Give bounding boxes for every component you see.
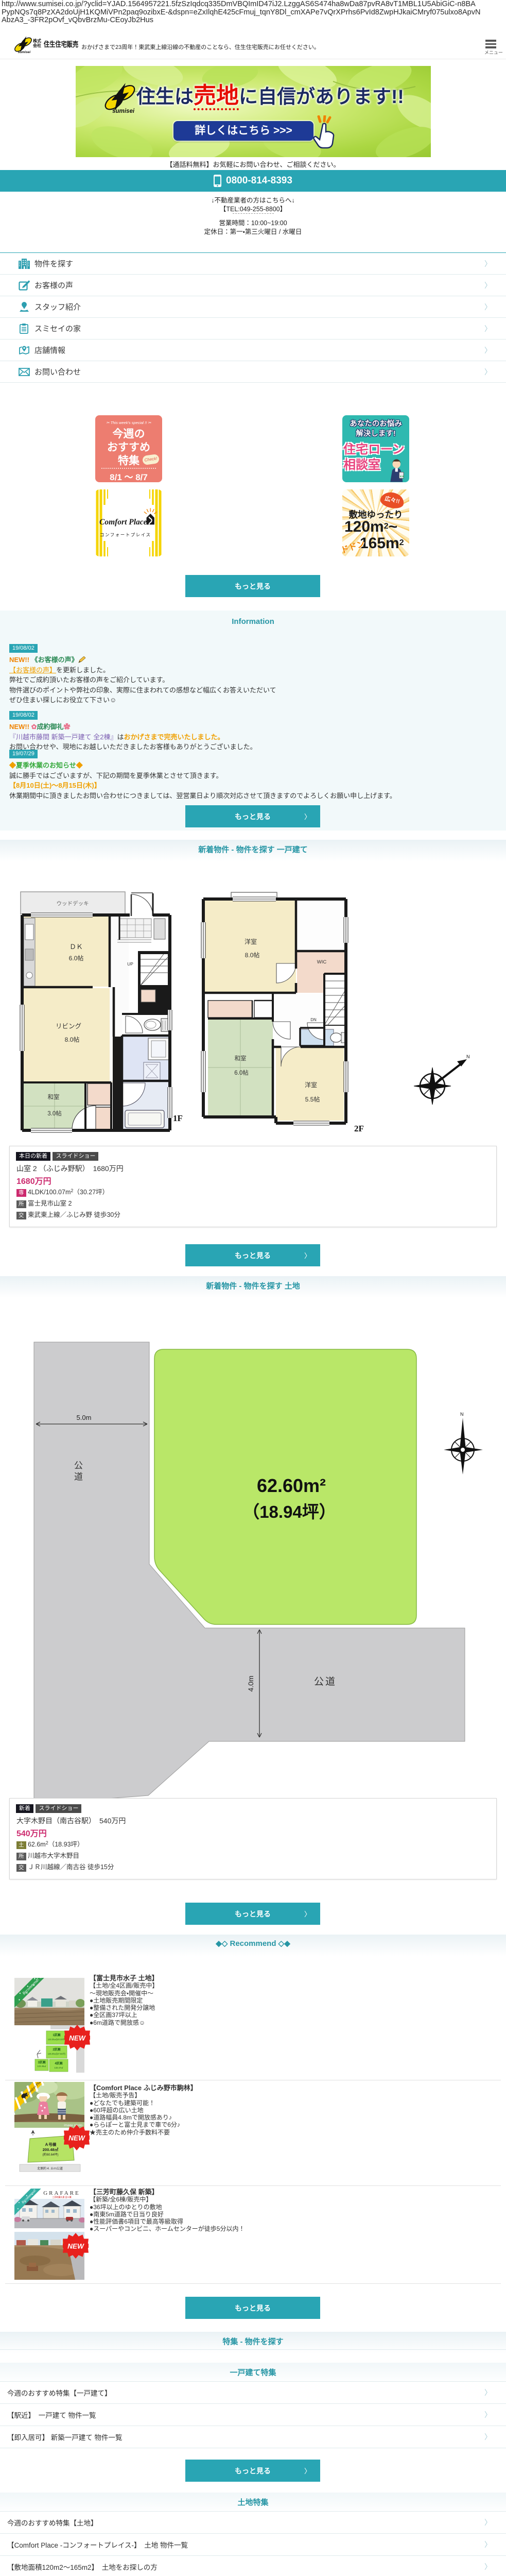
svg-text:N: N	[466, 1054, 470, 1059]
svg-text:(約60.64坪): (約60.64坪)	[42, 2153, 58, 2157]
svg-text:公: 公	[74, 1461, 83, 1470]
svg-text:和室: 和室	[48, 1094, 60, 1100]
svg-text:2区画: 2区画	[53, 2047, 60, 2052]
svg-text:4区画: 4区画	[55, 2061, 62, 2065]
svg-text:洋室: 洋室	[305, 1081, 317, 1089]
svg-text:2F: 2F	[354, 1124, 364, 1133]
svg-text:133.47㎡: 133.47㎡	[55, 2066, 64, 2069]
svg-text:リビング: リビング	[56, 1023, 81, 1030]
svg-text:洋室: 洋室	[245, 938, 257, 945]
svg-text:NEW: NEW	[67, 2243, 84, 2250]
svg-text:UP: UP	[127, 961, 133, 967]
svg-text:（18.94坪）: （18.94坪）	[242, 1502, 336, 1521]
svg-text:200.48㎡: 200.48㎡	[43, 2147, 59, 2152]
svg-text:公道: 公道	[314, 1676, 337, 1687]
svg-text:125.09㎡(37.84坪): 125.09㎡(37.84坪)	[48, 2052, 66, 2056]
svg-text:北側約４.８ｍ公道: 北側約４.８ｍ公道	[37, 2166, 63, 2171]
svg-text:三芳町藤久保 全６棟: 三芳町藤久保 全６棟	[52, 2195, 71, 2198]
svg-text:道: 道	[74, 1472, 83, 1482]
svg-text:8.0帖: 8.0帖	[65, 1036, 80, 1043]
svg-text:6.0帖: 6.0帖	[69, 954, 84, 962]
svg-text:3.0帖: 3.0帖	[47, 1110, 62, 1117]
svg-text:和室: 和室	[235, 1055, 247, 1062]
svg-text:4.0m: 4.0m	[247, 1675, 255, 1691]
svg-text:ＤＫ: ＤＫ	[69, 943, 83, 951]
svg-text:5.0m: 5.0m	[77, 1414, 92, 1421]
svg-text:Ａ号棟: Ａ号棟	[45, 2142, 57, 2147]
svg-text:6.0帖: 6.0帖	[234, 1069, 249, 1076]
svg-text:133.35㎡(40.33坪): 133.35㎡(40.33坪)	[48, 2038, 66, 2041]
svg-text:3区画: 3区画	[38, 2060, 45, 2064]
svg-text:8.0帖: 8.0帖	[245, 951, 260, 959]
svg-text:5.5帖: 5.5帖	[305, 1095, 320, 1103]
svg-text:N: N	[460, 1412, 464, 1417]
svg-text:ウッドデッキ: ウッドデッキ	[57, 900, 89, 907]
svg-text:sumisei: sumisei	[18, 50, 31, 54]
svg-text:62.60m²: 62.60m²	[257, 1475, 326, 1496]
svg-text:1F: 1F	[173, 1113, 183, 1123]
svg-text:NEW: NEW	[69, 2035, 86, 2042]
svg-text:1区画: 1区画	[53, 2033, 60, 2037]
svg-text:sumisei: sumisei	[112, 108, 135, 113]
svg-text:DN: DN	[310, 1018, 317, 1022]
svg-text:123.45㎡: 123.45㎡	[38, 2064, 47, 2067]
svg-text:WIC: WIC	[317, 959, 327, 965]
svg-text:NEW: NEW	[68, 2134, 85, 2142]
